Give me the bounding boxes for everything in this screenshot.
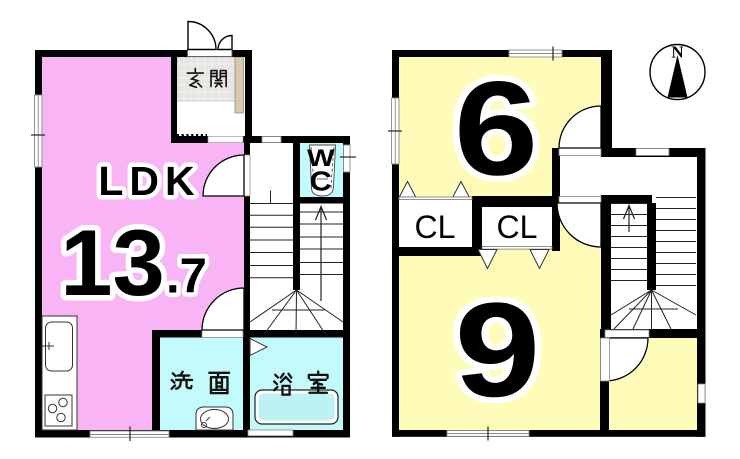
svg-text:CL: CL [497, 209, 538, 245]
svg-text:6: 6 [454, 55, 538, 204]
svg-text:C: C [310, 166, 332, 197]
svg-text:N: N [671, 43, 684, 62]
svg-text:13: 13 [60, 210, 165, 315]
svg-text:LDK: LDK [98, 158, 200, 204]
svg-text:.7: .7 [166, 250, 207, 304]
svg-text:9: 9 [455, 274, 541, 424]
svg-text:CL: CL [415, 209, 456, 245]
